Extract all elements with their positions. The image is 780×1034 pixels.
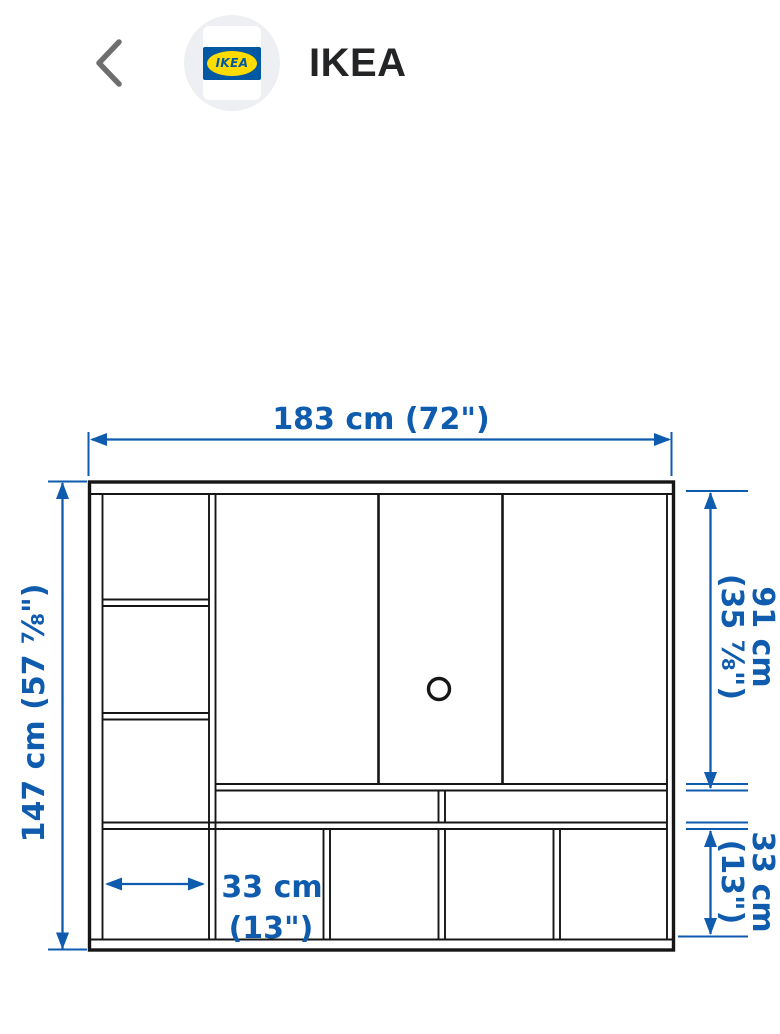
label-cell-width-line1: 33 cm — [221, 870, 322, 905]
dimension-cell-width — [105, 878, 205, 891]
label-lower-height-line1: 33 cm — [745, 831, 780, 932]
arrowhead-left — [105, 878, 122, 891]
arrowhead-left — [90, 433, 107, 446]
door-divider-lines — [379, 495, 503, 784]
label-upper-height-line1: 91 cm — [745, 586, 780, 687]
arrowhead-up — [704, 492, 717, 509]
dimension-total-width — [89, 432, 672, 476]
arrowhead-up — [56, 482, 69, 499]
label-cell-width-line2: (13") — [229, 911, 314, 946]
cabinet-outer-frame — [90, 482, 674, 950]
arrowhead-down — [704, 772, 717, 789]
label-lower-height-line2: (13") — [714, 840, 749, 925]
dimension-total-height — [48, 482, 87, 950]
label-upper-height-line2: (35 ⅞") — [714, 574, 749, 700]
furniture-outline — [90, 482, 674, 950]
arrowhead-right — [654, 433, 671, 446]
door-knob — [429, 679, 450, 700]
label-total-width: 183 cm (72") — [272, 402, 489, 437]
label-total-height: 147 cm (57 ⅞") — [17, 584, 52, 843]
product-dimension-image[interactable]: 183 cm (72") 147 cm (57 ⅞") 91 cm (35 ⅞"… — [0, 0, 780, 1034]
arrowhead-down — [56, 933, 69, 950]
arrowhead-right — [188, 878, 205, 891]
